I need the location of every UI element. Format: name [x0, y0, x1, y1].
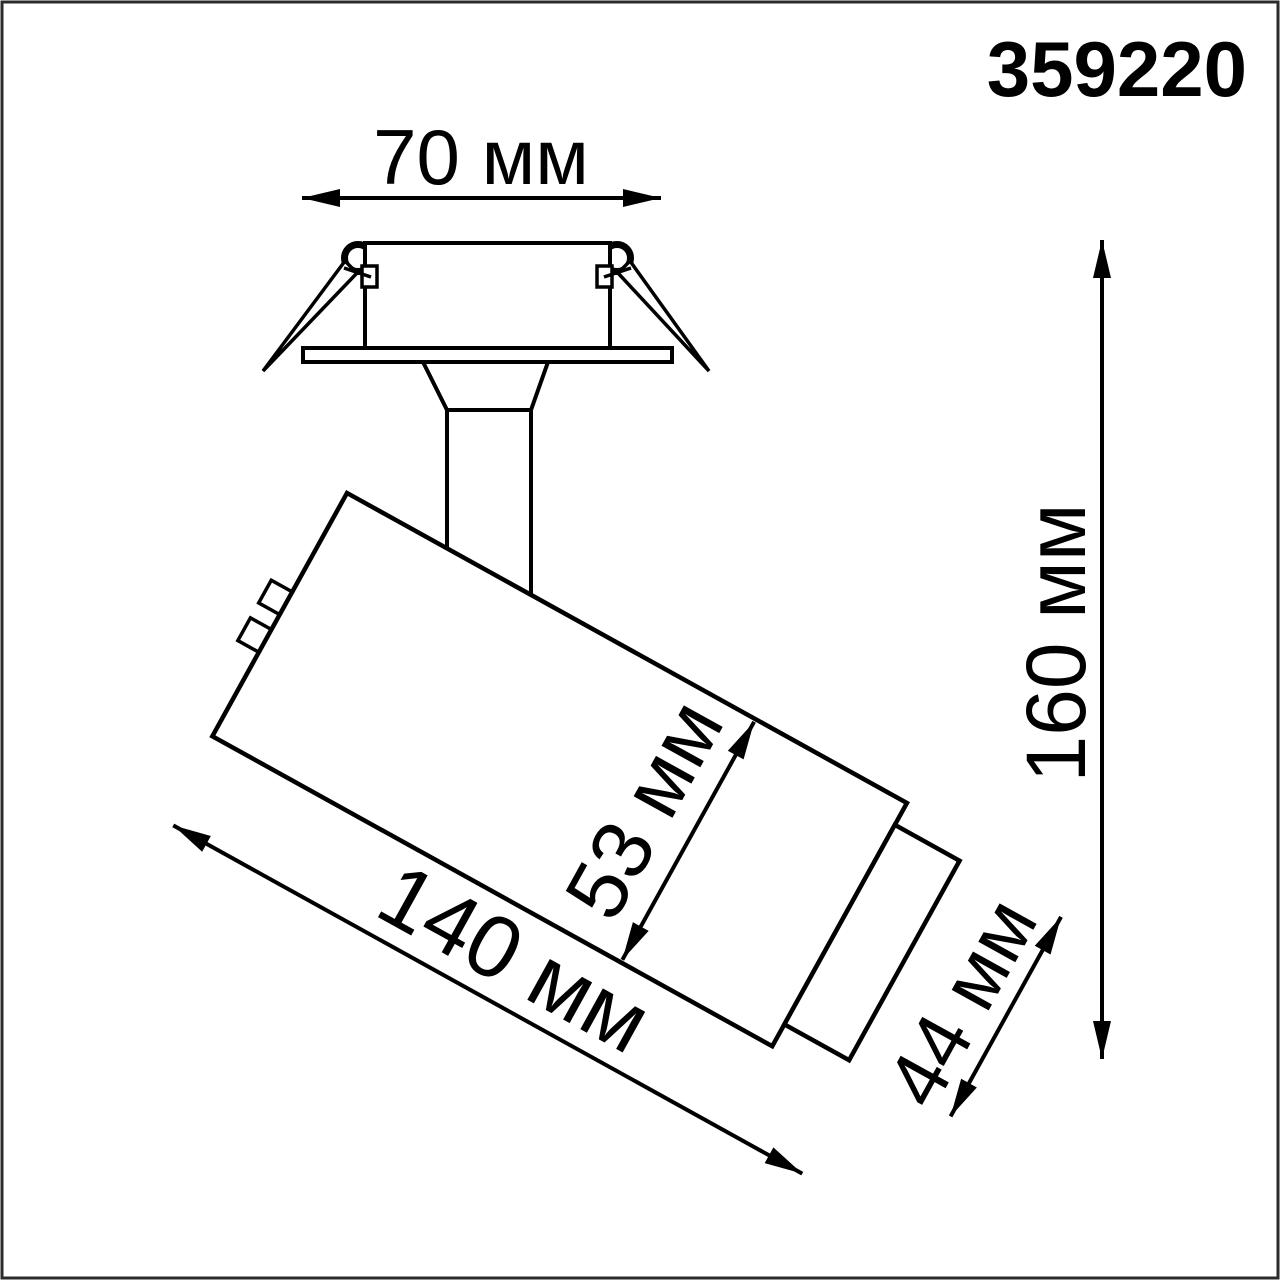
mount-neck — [423, 362, 548, 410]
dim-cutout-width: 70 мм — [302, 113, 661, 201]
trim-flange — [303, 348, 672, 362]
mount-housing — [365, 243, 610, 348]
technical-drawing: 53 мм 44 мм 140 мм 70 мм 160 мм 359220 — [0, 0, 1280, 1280]
dim-label-70: 70 мм — [373, 113, 589, 201]
dim-label-160: 160 мм — [1009, 504, 1103, 783]
product-code: 359220 — [987, 25, 1247, 113]
spotlight-drawing: 53 мм 44 мм 140 мм — [144, 481, 1073, 1223]
technical-drawing-page: 53 мм 44 мм 140 мм 70 мм 160 мм 359220 — [0, 0, 1280, 1280]
